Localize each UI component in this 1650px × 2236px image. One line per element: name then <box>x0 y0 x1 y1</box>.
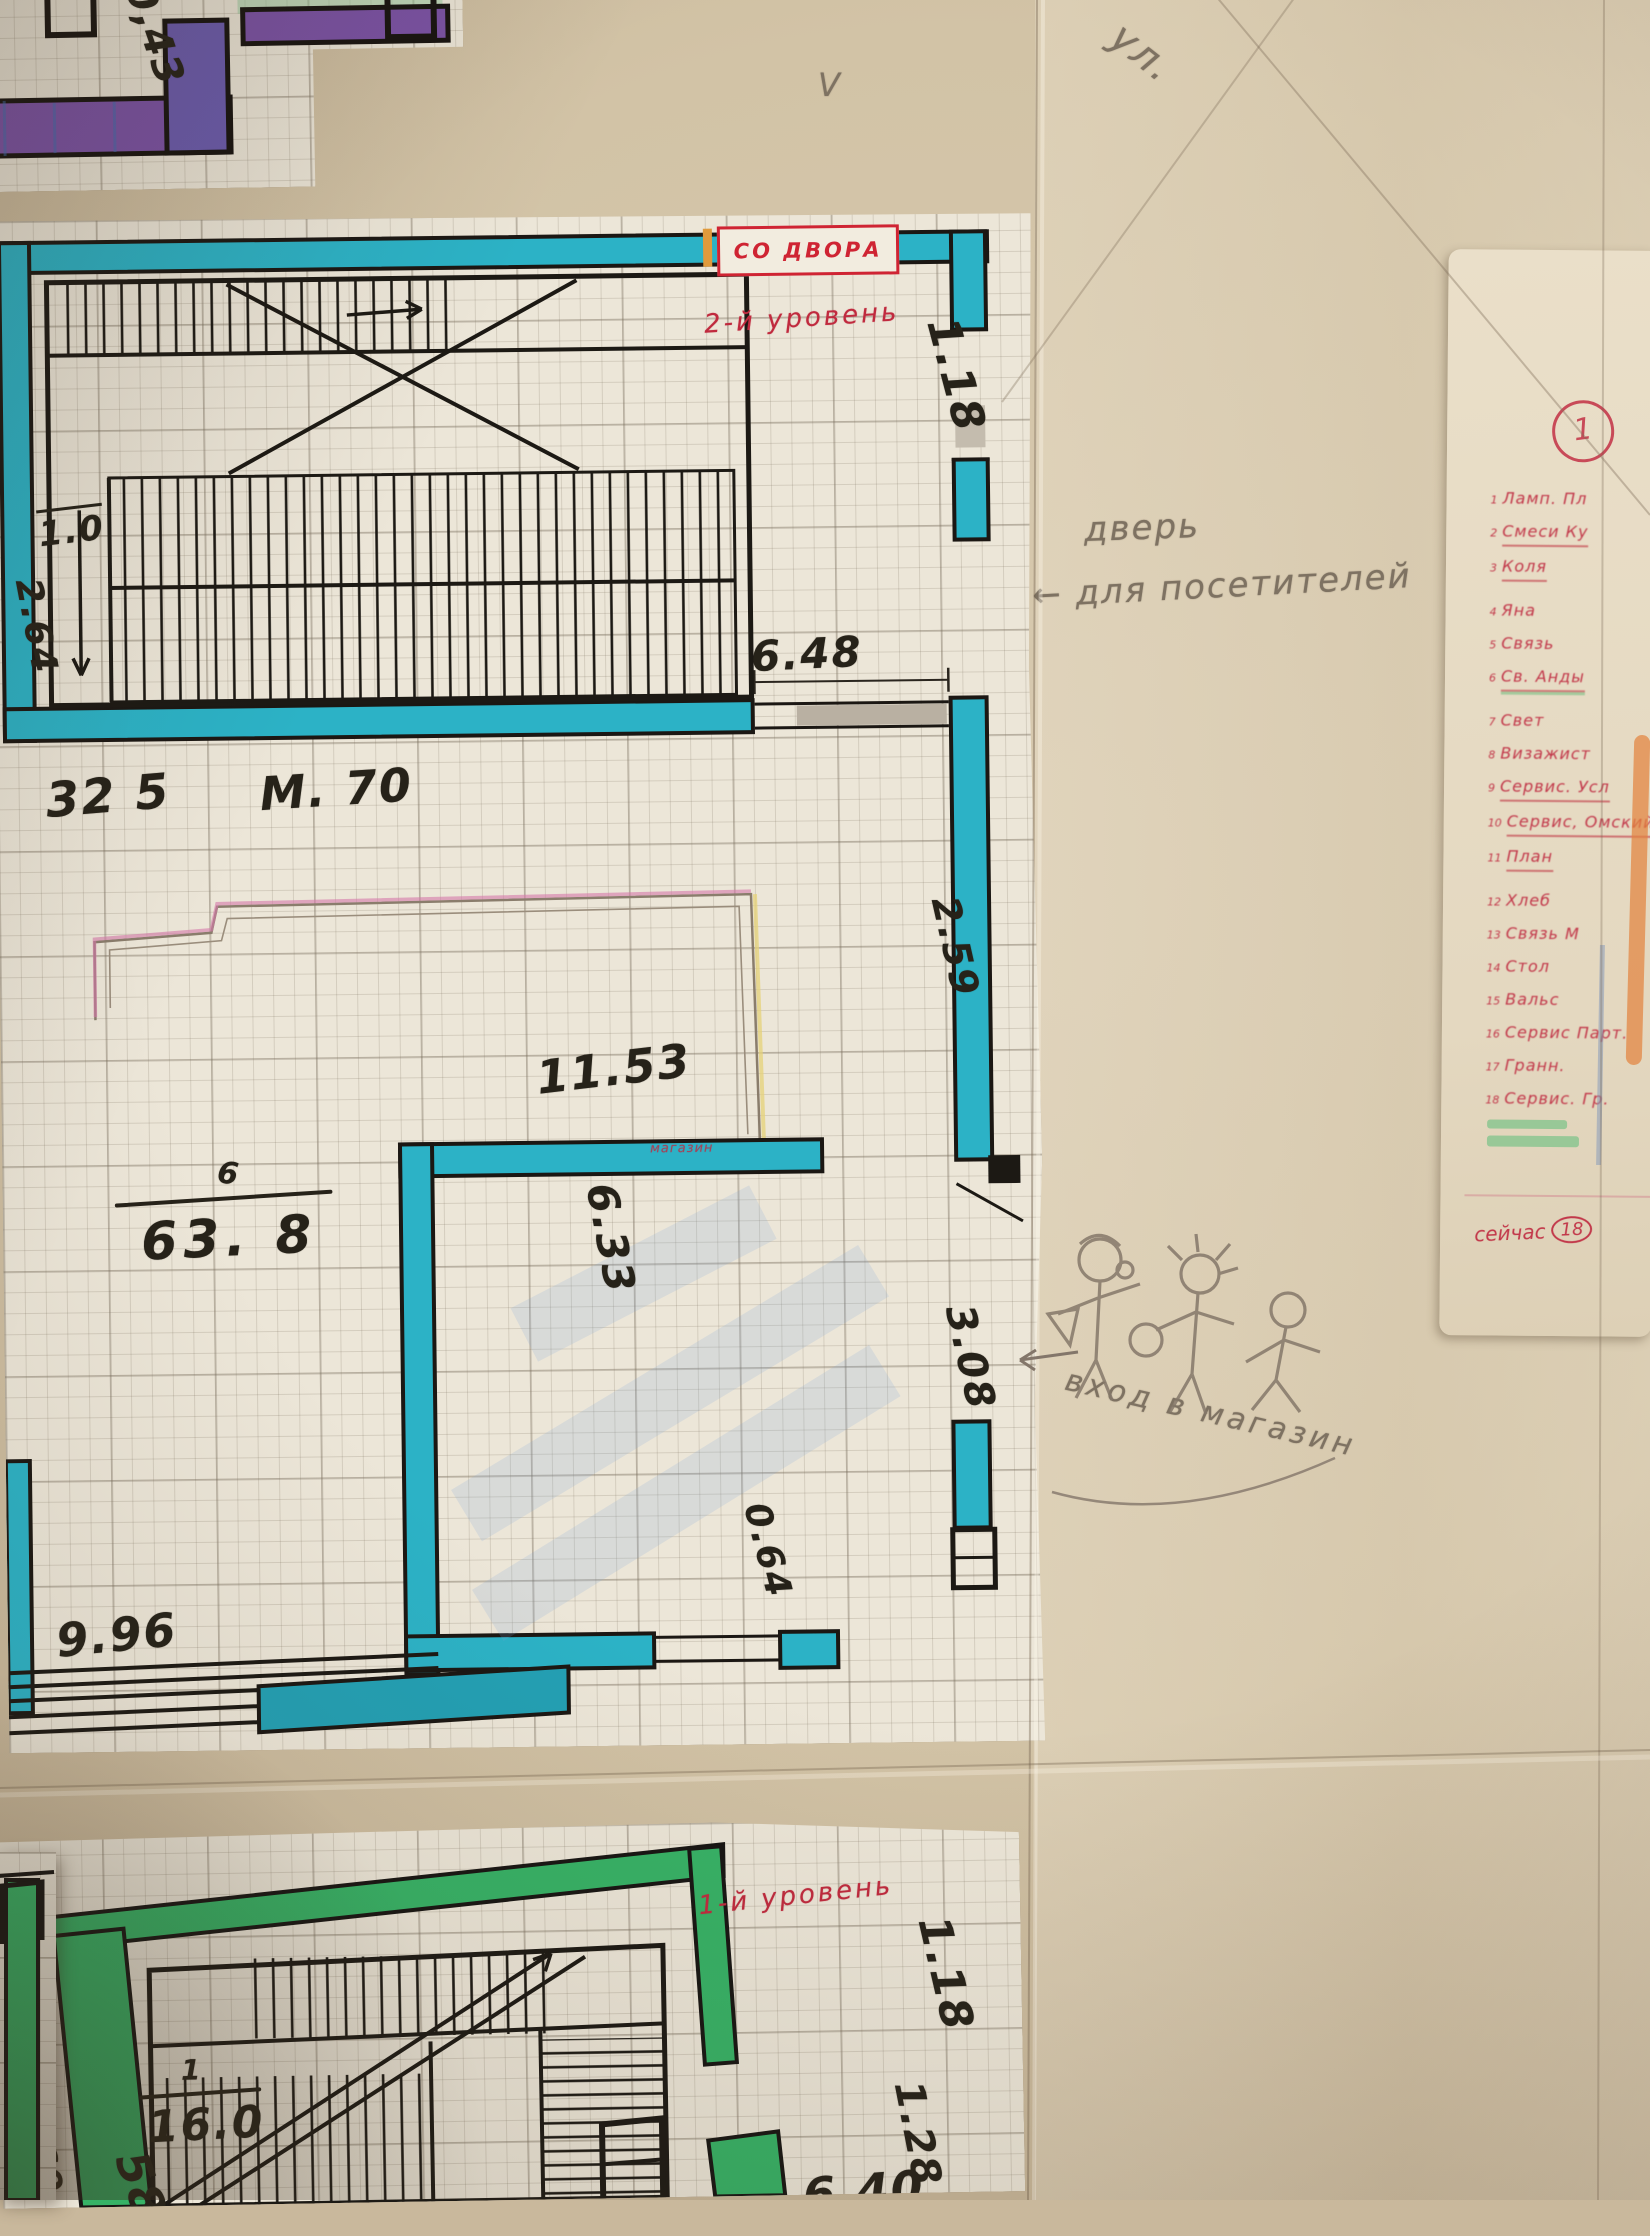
lower-floor-plan-sheet: 1-й уровень 1.18 1 16.0 2.69 58 1.28 6.4… <box>0 1817 1025 2209</box>
footer-word: сейчас <box>1474 1219 1546 1246</box>
note-list-item: 18Сервис. Гр. <box>1485 1086 1650 1112</box>
page-number-badge: 1 <box>1548 396 1618 466</box>
yard-entrance-label-box: СО ДВОРА <box>717 224 900 276</box>
note-list-item: 1Ламп. Пл <box>1490 486 1650 512</box>
dim-10: 1.0 <box>36 503 107 555</box>
note-list-item: 8Визажист <box>1488 741 1650 767</box>
room-number-6: 6 <box>215 1155 242 1193</box>
fragment-drawing <box>0 1852 56 2200</box>
dim-325: 32 5 <box>44 763 173 829</box>
note-list-item: 4Яна <box>1489 598 1650 624</box>
note-list-item: 5Связь <box>1489 631 1650 657</box>
staircase-drawing <box>149 1945 667 2206</box>
note-list-item: 6Св. Анды <box>1489 664 1650 692</box>
pink-underline <box>1464 1194 1650 1198</box>
note-list-item: 10Сервис, Омский <box>1488 809 1650 837</box>
footer-count-circle: 18 <box>1551 1215 1593 1244</box>
note-list-item: 15Вальс <box>1486 987 1650 1013</box>
door-note-line1: дверь <box>1083 506 1200 550</box>
note-list-item: 9Сервис. Усл <box>1488 774 1650 802</box>
room-area-638: 63. 8 <box>140 1204 319 1272</box>
note-list-item: 7Свет <box>1489 708 1650 734</box>
yard-entrance-label: СО ДВОРА <box>734 238 883 264</box>
note-list-item: 2Смеси Ку <box>1490 519 1650 547</box>
blue-shading <box>463 1211 888 1616</box>
counter-sketch <box>94 891 764 1150</box>
note-list-item: 12Хлеб <box>1487 888 1650 914</box>
upper-floor-plan-sheet: СО ДВОРА 2-й уровень 1.18 6.48 1.0 2.64 … <box>0 209 1049 1754</box>
dim-640: 6.40 <box>801 2160 926 2222</box>
bottom-left-fragment <box>0 1852 56 2200</box>
check-mark: V <box>818 66 842 104</box>
room-number-1: 1 <box>181 2053 203 2086</box>
dim-648: 6.48 <box>750 627 864 681</box>
note-footer: сейчас 18 <box>1474 1215 1593 1247</box>
note-card: 1 1Ламп. Пл2Смеси Ку3Коля4Яна5Связь6Св. … <box>1439 249 1650 1337</box>
upper-plan-drawing <box>0 209 1049 1754</box>
staircase-drawing <box>46 274 751 706</box>
green-highlight-bar <box>1487 1119 1567 1129</box>
note-list-item: 14Стол <box>1486 954 1650 980</box>
photo-scene: 0,43 <box>0 0 1650 2200</box>
note-list: 1Ламп. Пл2Смеси Ку3Коля4Яна5Связь6Св. Ан… <box>1485 486 1650 1120</box>
wall-detail-box <box>47 0 94 35</box>
note-list-item: 11План <box>1487 844 1650 872</box>
dim-m70: М. 70 <box>258 757 414 821</box>
green-highlight-bar <box>1487 1135 1579 1147</box>
note-list-item: 13Связь М <box>1487 921 1650 947</box>
room-area-160: 16.0 <box>147 2096 266 2153</box>
note-list-item: 3Коля <box>1490 554 1650 582</box>
shop-label: магазин <box>650 1141 714 1157</box>
